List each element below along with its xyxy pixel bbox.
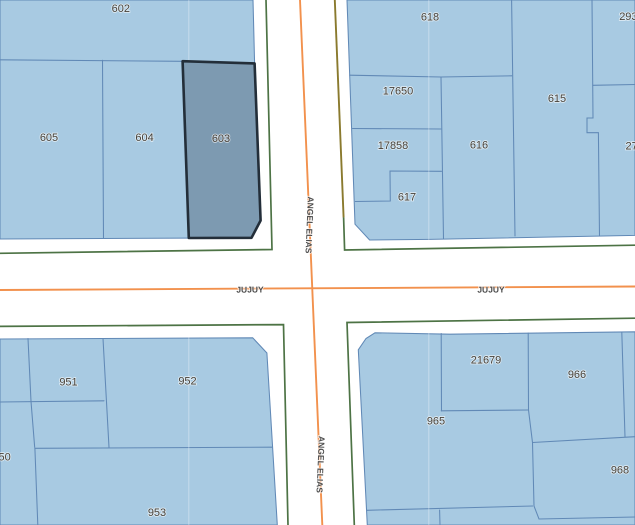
- svg-text:966: 966: [568, 369, 586, 381]
- svg-text:JUJUY: JUJUY: [477, 284, 505, 294]
- svg-text:17650: 17650: [383, 86, 414, 98]
- svg-text:618: 618: [421, 12, 439, 24]
- svg-text:605: 605: [40, 132, 58, 144]
- svg-text:604: 604: [135, 132, 153, 144]
- svg-text:603: 603: [212, 133, 230, 145]
- svg-text:953: 953: [148, 507, 166, 519]
- svg-text:616: 616: [470, 140, 488, 152]
- svg-text:JUJUY: JUJUY: [236, 284, 264, 294]
- svg-text:2937: 2937: [619, 11, 635, 23]
- svg-text:21679: 21679: [471, 355, 502, 367]
- svg-text:617: 617: [398, 192, 416, 204]
- svg-text:951: 951: [59, 377, 77, 389]
- svg-text:271: 271: [626, 141, 635, 153]
- svg-text:615: 615: [548, 93, 566, 105]
- svg-text:17858: 17858: [378, 140, 409, 152]
- svg-text:965: 965: [427, 416, 445, 428]
- svg-text:968: 968: [611, 465, 629, 477]
- svg-text:950: 950: [0, 452, 11, 464]
- svg-text:602: 602: [112, 3, 130, 15]
- svg-text:952: 952: [178, 376, 196, 388]
